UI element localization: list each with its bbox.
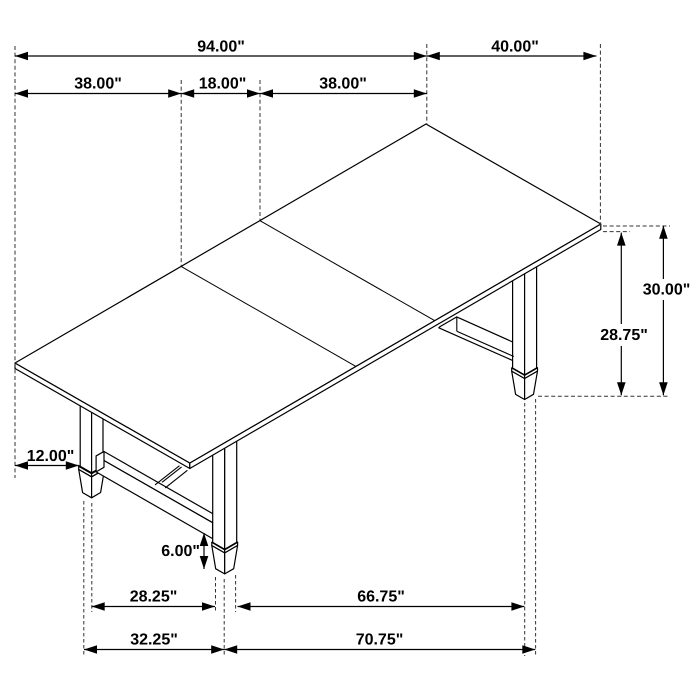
svg-text:38.00": 38.00": [319, 76, 367, 93]
svg-text:30.00": 30.00": [643, 282, 691, 299]
svg-text:70.75": 70.75": [356, 632, 404, 649]
svg-text:32.25": 32.25": [130, 632, 178, 649]
svg-text:28.75": 28.75": [600, 327, 648, 344]
svg-text:6.00": 6.00": [161, 543, 200, 560]
svg-text:38.00": 38.00": [74, 76, 122, 93]
svg-text:94.00": 94.00": [197, 39, 245, 56]
svg-text:18.00": 18.00": [199, 76, 247, 93]
svg-text:40.00": 40.00": [491, 39, 539, 56]
svg-text:28.25": 28.25": [130, 589, 178, 606]
svg-text:66.75": 66.75": [357, 589, 405, 606]
svg-text:12.00": 12.00": [27, 448, 75, 465]
